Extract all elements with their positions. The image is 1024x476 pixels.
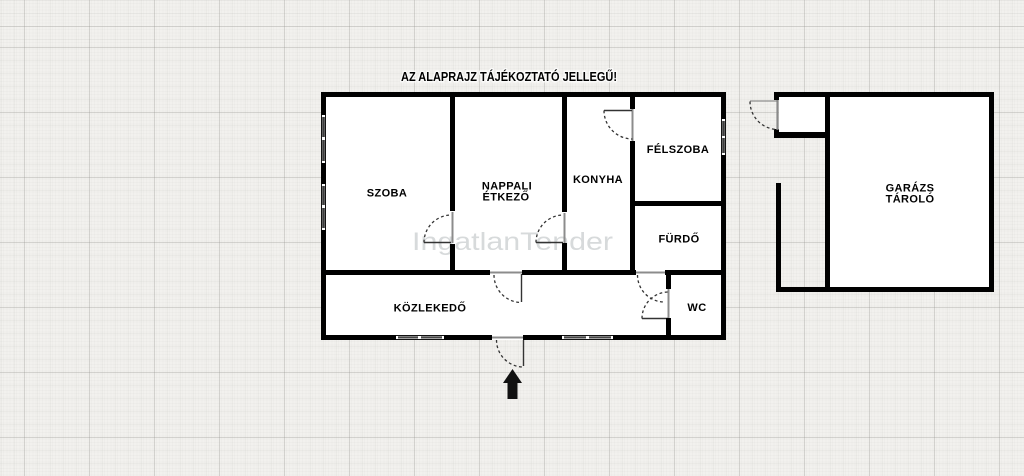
svg-text:ÉTKEZŐ: ÉTKEZŐ bbox=[482, 191, 529, 204]
svg-text:TÁROLÓ: TÁROLÓ bbox=[886, 193, 935, 206]
svg-text:AZ ALAPRAJZ TÁJÉKOZTATÓ JELLEG: AZ ALAPRAJZ TÁJÉKOZTATÓ JELLEGŰ! bbox=[401, 69, 617, 84]
svg-text:WC: WC bbox=[687, 302, 706, 314]
svg-text:FÜRDŐ: FÜRDŐ bbox=[658, 233, 699, 246]
svg-text:KONYHA: KONYHA bbox=[573, 174, 623, 186]
svg-text:KÖZLEKEDŐ: KÖZLEKEDŐ bbox=[394, 302, 467, 315]
svg-text:FÉLSZOBA: FÉLSZOBA bbox=[647, 143, 709, 156]
svg-text:SZOBA: SZOBA bbox=[367, 188, 408, 200]
